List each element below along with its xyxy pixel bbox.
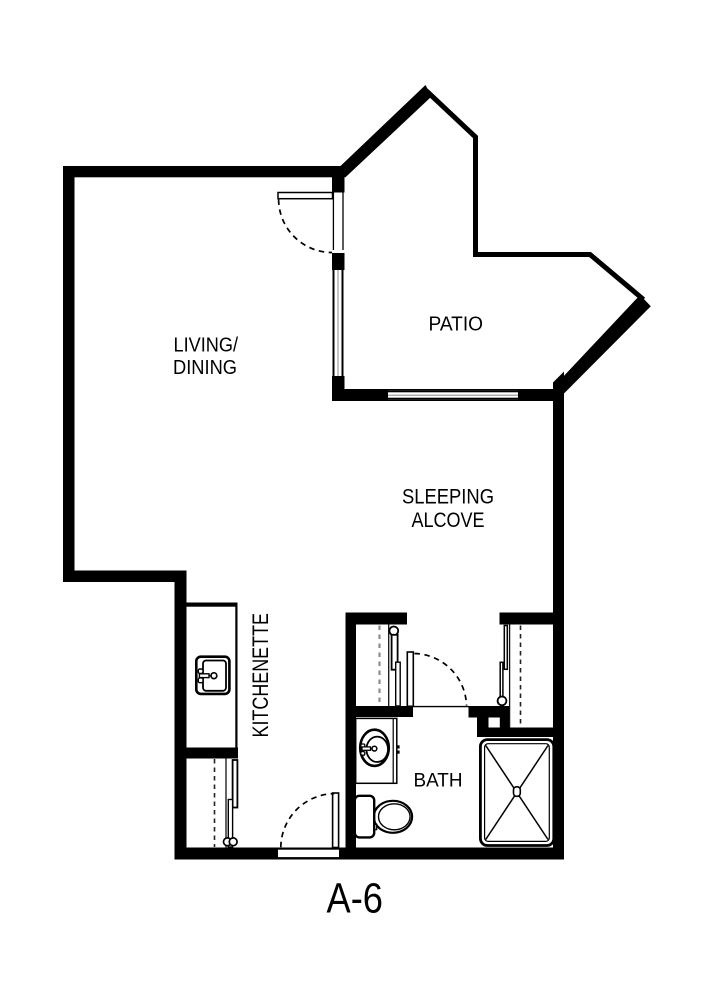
svg-text:LIVING/: LIVING/: [174, 334, 239, 357]
svg-text:KITCHENETTE: KITCHENETTE: [248, 613, 273, 738]
svg-text:PATIO: PATIO: [429, 313, 484, 335]
svg-text:A-6: A-6: [327, 874, 384, 922]
svg-text:ALCOVE: ALCOVE: [412, 509, 485, 532]
svg-text:DINING: DINING: [173, 356, 237, 379]
svg-text:BATH: BATH: [414, 770, 463, 791]
svg-text:SLEEPING: SLEEPING: [402, 486, 494, 509]
